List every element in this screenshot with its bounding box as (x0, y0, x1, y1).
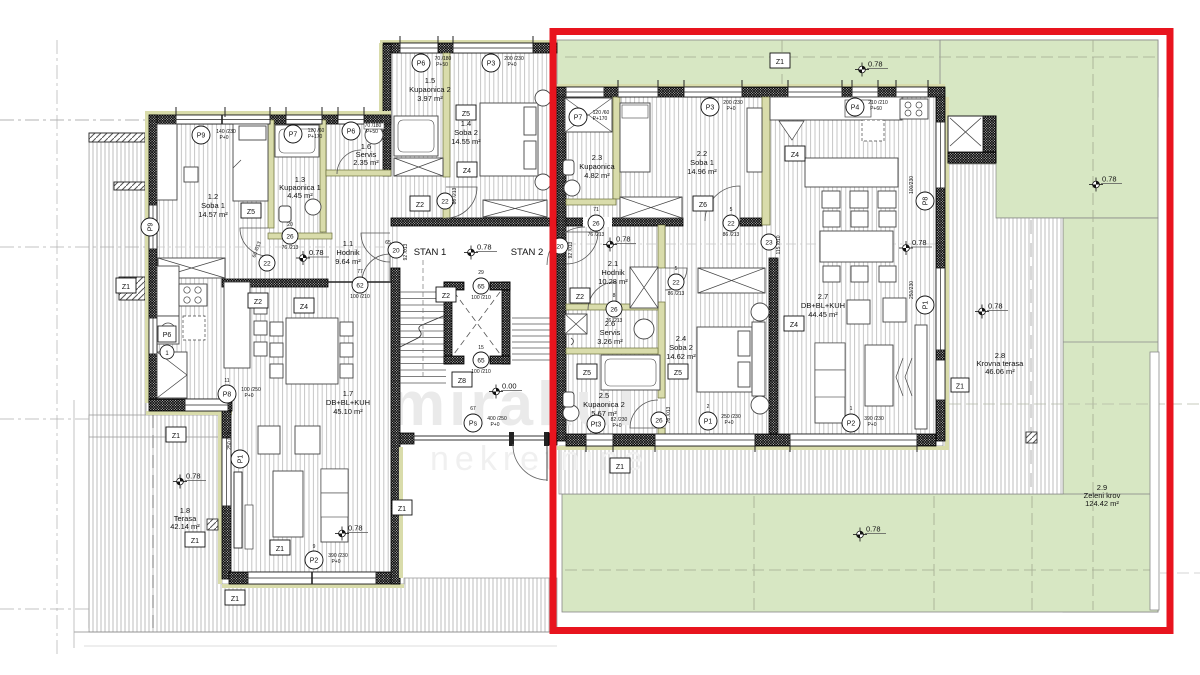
svg-text:2: 2 (707, 404, 710, 410)
svg-text:P7: P7 (289, 132, 298, 139)
svg-text:Kupaonica 2: Kupaonica 2 (409, 85, 451, 94)
svg-text:Hodnik: Hodnik (336, 248, 360, 257)
svg-text:Z5: Z5 (583, 370, 591, 377)
svg-text:Kupaonica 2: Kupaonica 2 (583, 400, 625, 409)
svg-text:92 /013: 92 /013 (403, 243, 409, 260)
svg-text:P6: P6 (347, 129, 356, 136)
svg-text:5: 5 (730, 207, 733, 213)
svg-text:P2: P2 (847, 421, 856, 428)
svg-text:2.2: 2.2 (697, 149, 707, 158)
svg-text:P1: P1 (923, 301, 930, 310)
svg-text:100 /210: 100 /210 (471, 295, 491, 301)
svg-text:DB+BL+KUH: DB+BL+KUH (326, 398, 370, 407)
svg-text:Z8: Z8 (458, 378, 466, 385)
svg-text:8: 8 (613, 293, 616, 299)
svg-text:62: 62 (356, 283, 364, 290)
svg-text:26: 26 (655, 418, 663, 425)
svg-text:Z2: Z2 (416, 202, 424, 209)
svg-text:P+50: P+50 (436, 62, 448, 68)
svg-text:P+0: P+0 (331, 559, 340, 565)
svg-text:5: 5 (675, 266, 678, 272)
svg-text:23: 23 (765, 240, 773, 247)
svg-text:Servis: Servis (600, 328, 621, 337)
svg-text:1: 1 (850, 406, 853, 412)
svg-text:0.78: 0.78 (186, 472, 201, 481)
svg-text:P8: P8 (923, 197, 930, 206)
svg-text:1.7: 1.7 (343, 389, 353, 398)
svg-text:11: 11 (224, 378, 229, 384)
svg-text:86 /213: 86 /213 (452, 187, 458, 204)
svg-text:P+170: P+170 (593, 116, 608, 122)
svg-text:22: 22 (441, 199, 449, 206)
svg-text:P+50: P+50 (366, 129, 378, 135)
svg-text:76 /213: 76 /213 (606, 318, 623, 324)
svg-text:15: 15 (478, 345, 484, 351)
svg-text:Z2: Z2 (442, 293, 450, 300)
svg-text:Z1: Z1 (276, 546, 284, 553)
svg-text:Z1: Z1 (956, 384, 964, 391)
svg-text:77: 77 (357, 269, 363, 275)
svg-text:P+0: P+0 (219, 135, 228, 141)
svg-text:86 /213: 86 /213 (668, 291, 685, 297)
svg-text:Soba 2: Soba 2 (454, 128, 478, 137)
svg-text:9.64 m²: 9.64 m² (335, 257, 361, 266)
svg-text:44.45 m²: 44.45 m² (808, 310, 838, 319)
svg-text:P3: P3 (706, 105, 715, 112)
svg-text:0.78: 0.78 (988, 302, 1003, 311)
svg-text:P1: P1 (238, 455, 245, 464)
svg-text:P+0: P+0 (612, 423, 621, 429)
svg-text:2.7: 2.7 (818, 292, 828, 301)
svg-text:65: 65 (385, 240, 391, 246)
svg-text:71: 71 (593, 207, 599, 213)
svg-text:Z1: Z1 (191, 538, 199, 545)
svg-text:Z6: Z6 (699, 202, 707, 209)
svg-text:Z4: Z4 (790, 322, 798, 329)
svg-text:76 /213: 76 /213 (588, 232, 605, 238)
svg-text:14.96 m²: 14.96 m² (687, 167, 717, 176)
svg-text:10.28 m²: 10.28 m² (598, 277, 628, 286)
svg-text:Kupaonica: Kupaonica (579, 162, 615, 171)
svg-text:STAN 2: STAN 2 (511, 247, 544, 258)
svg-text:9: 9 (313, 544, 316, 550)
svg-text:14.57 m²: 14.57 m² (198, 210, 228, 219)
svg-text:DB+BL+KUH: DB+BL+KUH (801, 301, 845, 310)
svg-text:Z2: Z2 (254, 299, 262, 306)
svg-text:26: 26 (610, 307, 618, 314)
svg-text:Pt3: Pt3 (591, 422, 602, 429)
svg-text:67: 67 (470, 406, 476, 412)
svg-text:Z1: Z1 (616, 464, 624, 471)
svg-text:0.78: 0.78 (868, 60, 883, 69)
svg-text:2.4: 2.4 (676, 334, 686, 343)
svg-text:20: 20 (287, 222, 293, 228)
svg-text:250 /230: 250 /230 (227, 430, 233, 450)
svg-text:100/230: 100/230 (909, 176, 915, 194)
svg-text:Z2: Z2 (576, 294, 584, 301)
svg-text:Soba 1: Soba 1 (201, 201, 225, 210)
svg-text:0.78: 0.78 (866, 525, 881, 534)
svg-text:26: 26 (286, 234, 294, 241)
svg-text:65: 65 (477, 284, 485, 291)
svg-text:3.26 m²: 3.26 m² (597, 337, 623, 346)
svg-text:1.2: 1.2 (208, 192, 218, 201)
svg-text:P9: P9 (148, 223, 155, 232)
svg-text:Z4: Z4 (463, 168, 471, 175)
svg-text:42.14 m²: 42.14 m² (170, 522, 200, 531)
svg-text:20: 20 (392, 248, 400, 255)
svg-text:Hodnik: Hodnik (601, 268, 625, 277)
svg-text:46.06 m²: 46.06 m² (985, 367, 1015, 376)
svg-text:14.62 m²: 14.62 m² (666, 352, 696, 361)
svg-text:250/230: 250/230 (909, 281, 915, 299)
svg-text:P7: P7 (574, 115, 583, 122)
svg-text:2.3: 2.3 (592, 153, 602, 162)
svg-text:100 /210: 100 /210 (350, 294, 370, 300)
svg-text:76 /213: 76 /213 (282, 245, 299, 251)
svg-text:0.78: 0.78 (1102, 175, 1117, 184)
svg-text:P2: P2 (310, 558, 319, 565)
svg-text:P1: P1 (704, 419, 713, 426)
svg-text:76 /013: 76 /013 (666, 406, 672, 423)
svg-text:Z5: Z5 (247, 209, 255, 216)
svg-text:Z5: Z5 (462, 111, 470, 118)
svg-text:2.1: 2.1 (608, 259, 618, 268)
svg-text:22: 22 (727, 221, 735, 228)
svg-text:0.78: 0.78 (348, 524, 363, 533)
svg-text:P+60: P+60 (870, 106, 882, 112)
svg-text:29: 29 (478, 270, 484, 276)
svg-text:P+0: P+0 (726, 106, 735, 112)
svg-text:124.42 m²: 124.42 m² (1085, 499, 1119, 508)
svg-text:P+0: P+0 (507, 62, 516, 68)
svg-text:Soba 1: Soba 1 (690, 158, 714, 167)
svg-text:Z1: Z1 (231, 596, 239, 603)
svg-text:P6: P6 (163, 332, 172, 339)
svg-text:P+0: P+0 (867, 422, 876, 428)
svg-text:P+0: P+0 (490, 422, 499, 428)
svg-text:STAN 1: STAN 1 (414, 247, 447, 258)
svg-text:P6: P6 (417, 61, 426, 68)
svg-text:1.1: 1.1 (343, 239, 353, 248)
svg-text:1.5: 1.5 (425, 76, 435, 85)
svg-text:14.55 m²: 14.55 m² (451, 137, 481, 146)
svg-text:20: 20 (556, 244, 564, 251)
svg-text:0.78: 0.78 (616, 235, 631, 244)
svg-text:Soba 2: Soba 2 (669, 343, 693, 352)
svg-text:P9: P9 (197, 133, 206, 140)
svg-text:65: 65 (477, 358, 485, 365)
svg-text:92 /013: 92 /013 (568, 241, 574, 258)
svg-text:100 /210: 100 /210 (471, 369, 491, 375)
svg-text:2.5: 2.5 (599, 391, 609, 400)
svg-text:3.97 m²: 3.97 m² (417, 94, 443, 103)
svg-text:Z4: Z4 (791, 152, 799, 159)
svg-text:P8: P8 (223, 392, 232, 399)
svg-text:26: 26 (592, 221, 600, 228)
svg-text:0.78: 0.78 (912, 238, 927, 247)
svg-text:P3: P3 (487, 61, 496, 68)
svg-text:Z1: Z1 (398, 506, 406, 513)
svg-text:86 /213: 86 /213 (723, 232, 740, 238)
svg-text:2.35 m²: 2.35 m² (353, 158, 379, 167)
svg-text:22: 22 (672, 280, 680, 287)
svg-text:Z1: Z1 (776, 59, 784, 66)
svg-text:Z4: Z4 (300, 304, 308, 311)
svg-text:0.78: 0.78 (309, 248, 324, 257)
svg-text:Ps: Ps (469, 421, 478, 428)
svg-text:P+0: P+0 (244, 393, 253, 399)
svg-text:4.45 m²: 4.45 m² (287, 191, 313, 200)
svg-text:Z1: Z1 (122, 284, 130, 291)
svg-text:22: 22 (263, 261, 271, 268)
svg-text:4.82 m²: 4.82 m² (584, 171, 610, 180)
svg-text:Z1: Z1 (172, 433, 180, 440)
svg-text:P+170: P+170 (308, 134, 323, 140)
svg-text:0.00: 0.00 (502, 382, 517, 391)
svg-text:P+0: P+0 (724, 420, 733, 426)
svg-text:0.78: 0.78 (477, 243, 492, 252)
svg-text:45.10 m²: 45.10 m² (333, 407, 363, 416)
svg-text:115 /010: 115 /010 (776, 235, 782, 254)
svg-text:Z5: Z5 (674, 370, 682, 377)
svg-text:P4: P4 (851, 105, 860, 112)
